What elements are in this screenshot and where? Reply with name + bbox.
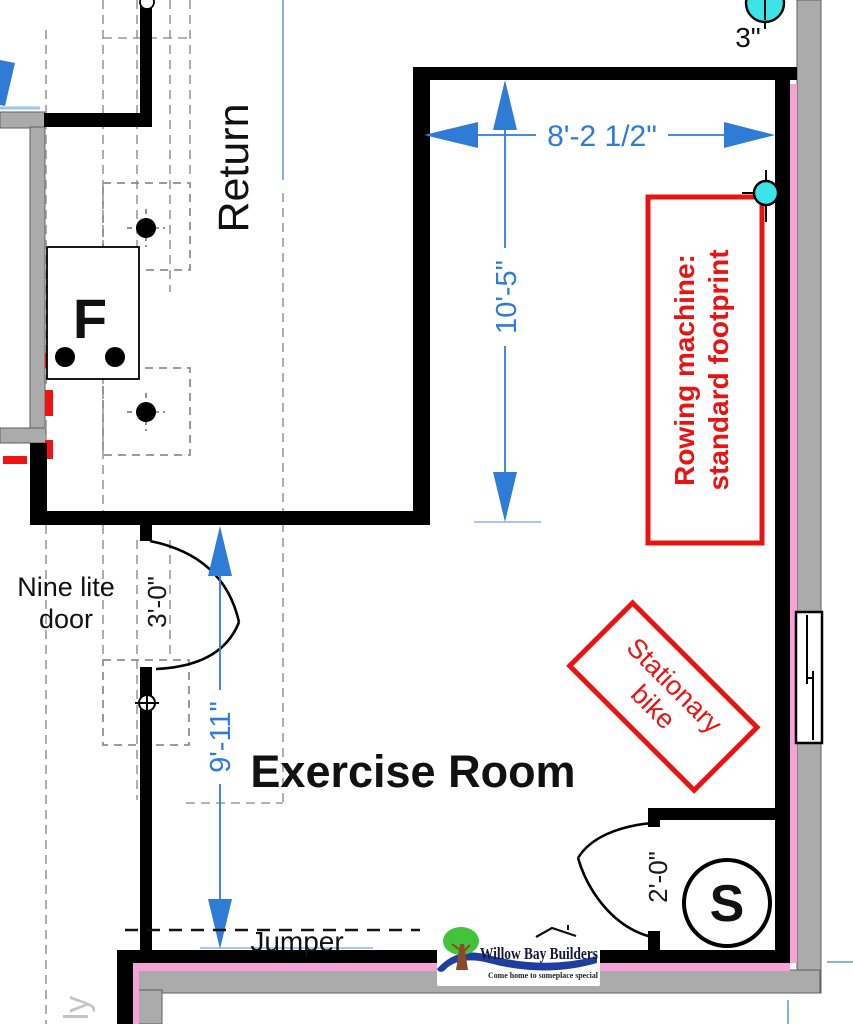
furnace-dot-left	[55, 347, 75, 367]
arrowhead-down-2	[208, 899, 232, 949]
fixture-dot-1	[136, 218, 156, 238]
arrowhead-down	[493, 472, 517, 522]
wall-room-right	[775, 78, 790, 963]
door-arc-lower	[156, 622, 239, 669]
red-dash-4	[3, 456, 27, 464]
smoke-detector-label: S	[710, 875, 745, 933]
gray-wall-top-left-horizontal	[0, 112, 45, 128]
stationary-bike-annotation: Stationary bike	[570, 603, 757, 790]
dimension-room-depth: 10'-5"	[491, 80, 523, 522]
wall-room-top	[413, 67, 797, 80]
door-jamb-top	[140, 525, 152, 541]
dimension-left-height-text: 9'-11"	[205, 701, 237, 773]
return-duct-label: Return	[210, 103, 258, 232]
partial-text-label: ly	[58, 996, 96, 1021]
rowing-machine-line2: standard footprint	[703, 249, 734, 490]
logo-name: Willow Bay Builders	[480, 944, 598, 963]
red-dash-2	[45, 390, 53, 416]
dimension-top-width: 8'-2 1/2"	[424, 120, 775, 153]
dimension-room-depth-text: 10'-5"	[491, 260, 523, 334]
furnace-label: F	[73, 287, 107, 350]
closet-jamb-bottom	[648, 931, 660, 951]
arrowhead-up	[493, 80, 517, 130]
door-note-line2: door	[39, 604, 93, 634]
door-note-line1: Nine lite	[17, 572, 115, 602]
builder-logo: Willow Bay Builders Come home to somepla…	[437, 921, 600, 986]
insulation-bottom-left	[133, 971, 139, 1024]
wall-top-left-horizontal	[44, 113, 152, 127]
gray-wall-bottom-left-column	[136, 990, 162, 1024]
wall-left-vertical	[30, 443, 47, 515]
cyan-fixture2-circle	[754, 181, 778, 205]
room-name-label: Exercise Room	[250, 746, 575, 797]
dimension-left-height: 9'-11"	[205, 526, 237, 949]
wall-upper-room-bottom	[30, 511, 430, 525]
fixture-size-label: 3"	[735, 22, 761, 53]
furnace-dot-right	[105, 347, 125, 367]
gray-wall-left-vertical	[30, 127, 45, 430]
hinge-symbol-top-edge	[140, 0, 154, 9]
floor-plan-page: F 8'-2 1/2"	[0, 0, 853, 1024]
arrowhead-up-2	[208, 526, 232, 576]
gray-wall-left-horizontal	[0, 428, 46, 443]
dimension-top-width-text: 8'-2 1/2"	[547, 120, 657, 153]
floor-plan-drawing: F 8'-2 1/2"	[0, 0, 853, 1024]
wall-top-left-vertical	[140, 0, 152, 127]
partial-arrow-left-edge	[0, 60, 15, 106]
walls	[30, 0, 797, 1024]
window-symbol	[796, 612, 822, 743]
arrowhead-left	[424, 122, 478, 148]
closet-wall-top	[648, 808, 790, 820]
fixture-dot-2	[136, 402, 156, 422]
insulation-right	[789, 84, 797, 963]
arrowhead-right	[724, 122, 775, 148]
furnace-unit: F	[47, 247, 139, 379]
rowing-machine-annotation: Rowing machine: standard footprint	[648, 197, 762, 543]
jumper-label: Jumper	[250, 926, 343, 957]
closet-arc-upper	[578, 823, 652, 858]
dimension-door-width-text: 3'-0"	[142, 576, 172, 628]
cyan-fixture-top: 3"	[735, 0, 784, 53]
rowing-machine-line1: Rowing machine:	[669, 254, 700, 486]
gray-wall-right-column	[797, 0, 821, 993]
closet-door	[578, 823, 652, 937]
wall-bottom-left-vertical	[117, 950, 133, 1024]
dimension-closet-door-text: 2'-0"	[643, 851, 673, 903]
logo-tagline: Come home to someplace special	[488, 970, 599, 980]
smoke-detector-symbol: S	[684, 860, 770, 946]
